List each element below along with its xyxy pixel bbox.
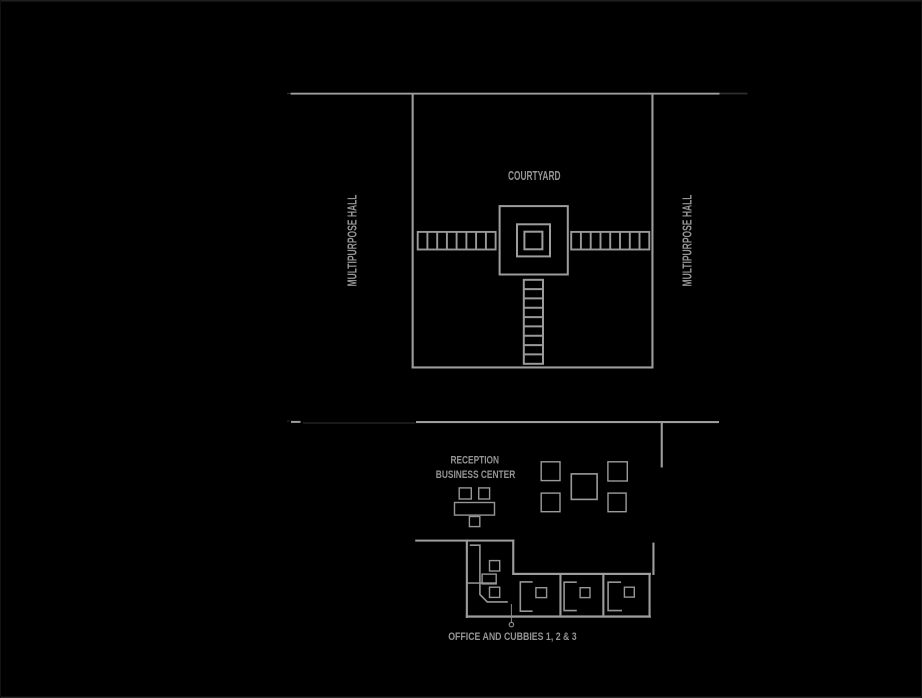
svg-text:MULTIPURPOSE HALL: MULTIPURPOSE HALL xyxy=(346,194,360,286)
svg-text:COURTYARD: COURTYARD xyxy=(508,169,561,183)
svg-text:OFFICE AND CUBBIES 1, 2 & 3: OFFICE AND CUBBIES 1, 2 & 3 xyxy=(448,631,577,643)
svg-text:MULTIPURPOSE HALL: MULTIPURPOSE HALL xyxy=(681,194,695,286)
svg-text:BUSINESS CENTER: BUSINESS CENTER xyxy=(436,469,516,481)
svg-text:RECEPTION: RECEPTION xyxy=(451,454,500,466)
